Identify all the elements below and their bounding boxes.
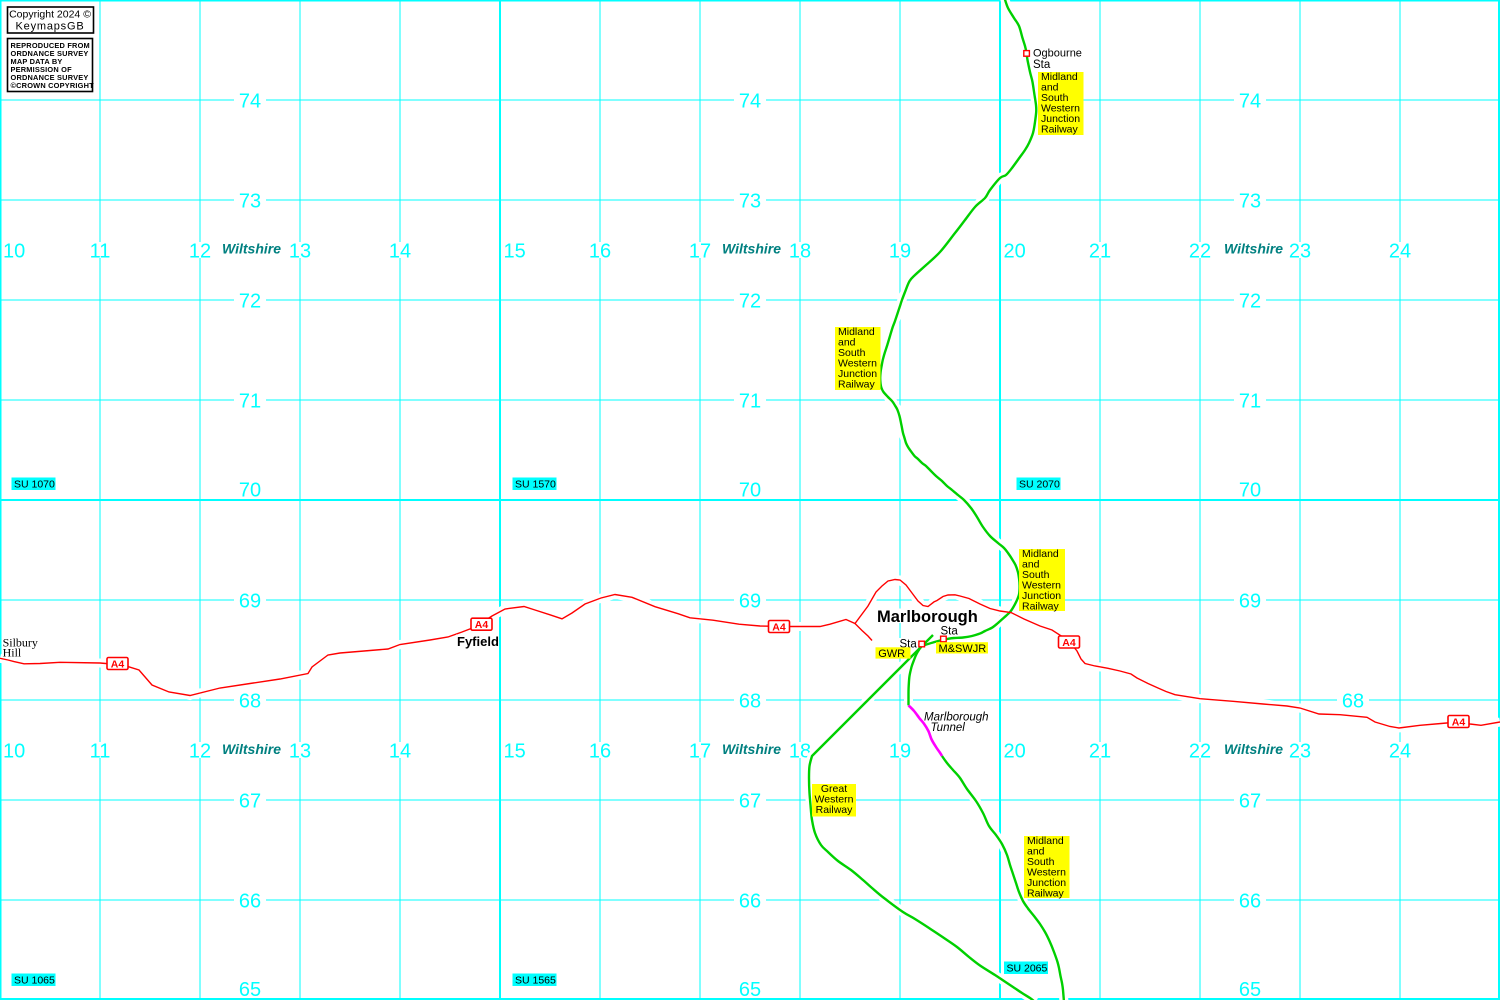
svg-text:71: 71 bbox=[239, 390, 261, 412]
svg-text:GWR: GWR bbox=[878, 648, 905, 660]
svg-text:20: 20 bbox=[1004, 740, 1026, 762]
svg-text:73: 73 bbox=[1239, 190, 1261, 212]
svg-text:SU 2070: SU 2070 bbox=[1019, 479, 1060, 491]
svg-text:68: 68 bbox=[239, 690, 261, 712]
svg-text:A4: A4 bbox=[1452, 716, 1466, 728]
svg-text:Ogbourne: Ogbourne bbox=[1033, 48, 1082, 60]
svg-text:73: 73 bbox=[239, 190, 261, 212]
svg-text:67: 67 bbox=[739, 790, 761, 812]
svg-text:Railway: Railway bbox=[1022, 600, 1060, 612]
svg-text:11: 11 bbox=[90, 740, 111, 762]
svg-text:72: 72 bbox=[739, 290, 761, 312]
svg-text:SU 1570: SU 1570 bbox=[515, 479, 556, 491]
svg-text:A4: A4 bbox=[475, 619, 489, 631]
svg-text:10: 10 bbox=[3, 240, 25, 262]
svg-text:Wiltshire: Wiltshire bbox=[1224, 241, 1283, 257]
svg-text:23: 23 bbox=[1289, 740, 1311, 762]
svg-text:16: 16 bbox=[589, 240, 611, 262]
svg-text:M&SWJR: M&SWJR bbox=[939, 643, 987, 655]
svg-text:SU 1070: SU 1070 bbox=[14, 479, 55, 491]
svg-text:69: 69 bbox=[239, 590, 261, 612]
svg-text:65: 65 bbox=[1239, 979, 1261, 1000]
svg-text:22: 22 bbox=[1189, 240, 1211, 262]
svg-text:17: 17 bbox=[689, 240, 711, 262]
svg-text:15: 15 bbox=[504, 740, 526, 762]
svg-text:Wiltshire: Wiltshire bbox=[222, 741, 281, 757]
svg-text:66: 66 bbox=[239, 890, 261, 912]
svg-text:Fyfield: Fyfield bbox=[457, 634, 499, 649]
svg-text:13: 13 bbox=[289, 740, 311, 762]
svg-text:SU 2065: SU 2065 bbox=[1007, 963, 1048, 975]
svg-text:68: 68 bbox=[1342, 690, 1364, 712]
svg-text:Railway: Railway bbox=[1041, 123, 1079, 135]
svg-text:66: 66 bbox=[1239, 890, 1261, 912]
svg-text:SU 1065: SU 1065 bbox=[14, 975, 55, 987]
svg-text:67: 67 bbox=[1239, 790, 1261, 812]
svg-text:14: 14 bbox=[389, 740, 411, 762]
svg-text:A4: A4 bbox=[1062, 637, 1076, 649]
svg-text:74: 74 bbox=[1239, 90, 1261, 112]
svg-text:68: 68 bbox=[739, 690, 761, 712]
svg-text:12: 12 bbox=[189, 740, 211, 762]
svg-text:Wiltshire: Wiltshire bbox=[722, 241, 781, 257]
svg-text:69: 69 bbox=[1239, 590, 1261, 612]
svg-text:24: 24 bbox=[1389, 240, 1411, 262]
svg-text:21: 21 bbox=[1089, 240, 1111, 262]
svg-text:Railway: Railway bbox=[816, 804, 854, 816]
svg-text:71: 71 bbox=[1239, 390, 1261, 412]
svg-text:20: 20 bbox=[1004, 240, 1026, 262]
svg-text:69: 69 bbox=[739, 590, 761, 612]
svg-text:Hill: Hill bbox=[3, 646, 22, 660]
svg-text:67: 67 bbox=[239, 790, 261, 812]
svg-text:Tunnel: Tunnel bbox=[931, 722, 966, 734]
svg-text:65: 65 bbox=[739, 979, 761, 1000]
svg-text:Copyright 2024 ©: Copyright 2024 © bbox=[9, 9, 91, 21]
svg-text:KeymapsGB: KeymapsGB bbox=[16, 21, 85, 33]
svg-text:Railway: Railway bbox=[1027, 887, 1065, 899]
svg-text:74: 74 bbox=[739, 90, 761, 112]
svg-text:24: 24 bbox=[1389, 740, 1411, 762]
svg-text:21: 21 bbox=[1089, 740, 1111, 762]
svg-text:14: 14 bbox=[389, 240, 411, 262]
svg-text:74: 74 bbox=[239, 90, 261, 112]
svg-text:SU 1565: SU 1565 bbox=[515, 975, 556, 987]
svg-text:Marlborough: Marlborough bbox=[877, 608, 978, 626]
svg-text:Wiltshire: Wiltshire bbox=[722, 741, 781, 757]
svg-text:16: 16 bbox=[589, 740, 611, 762]
svg-text:Sta: Sta bbox=[1033, 59, 1051, 71]
svg-text:A4: A4 bbox=[111, 658, 125, 670]
svg-text:71: 71 bbox=[739, 390, 761, 412]
svg-text:72: 72 bbox=[1239, 290, 1261, 312]
svg-text:19: 19 bbox=[889, 740, 911, 762]
svg-text:15: 15 bbox=[504, 240, 526, 262]
svg-text:23: 23 bbox=[1289, 240, 1311, 262]
svg-text:10: 10 bbox=[3, 740, 25, 762]
svg-text:66: 66 bbox=[739, 890, 761, 912]
svg-text:70: 70 bbox=[739, 480, 761, 502]
svg-text:Wiltshire: Wiltshire bbox=[222, 241, 281, 257]
svg-text:A4: A4 bbox=[772, 621, 786, 633]
svg-text:Wiltshire: Wiltshire bbox=[1224, 741, 1283, 757]
svg-text:Railway: Railway bbox=[838, 378, 876, 390]
svg-text:12: 12 bbox=[189, 240, 211, 262]
svg-text:19: 19 bbox=[889, 240, 911, 262]
svg-text:70: 70 bbox=[1239, 480, 1261, 502]
svg-text:18: 18 bbox=[789, 240, 811, 262]
svg-text:73: 73 bbox=[739, 190, 761, 212]
svg-text:11: 11 bbox=[90, 240, 111, 262]
svg-text:22: 22 bbox=[1189, 740, 1211, 762]
svg-text:70: 70 bbox=[239, 480, 261, 502]
svg-text:13: 13 bbox=[289, 240, 311, 262]
svg-text:72: 72 bbox=[239, 290, 261, 312]
svg-text:©CROWN COPYRIGHT: ©CROWN COPYRIGHT bbox=[11, 81, 95, 90]
svg-text:65: 65 bbox=[239, 979, 261, 1000]
svg-text:17: 17 bbox=[689, 740, 711, 762]
